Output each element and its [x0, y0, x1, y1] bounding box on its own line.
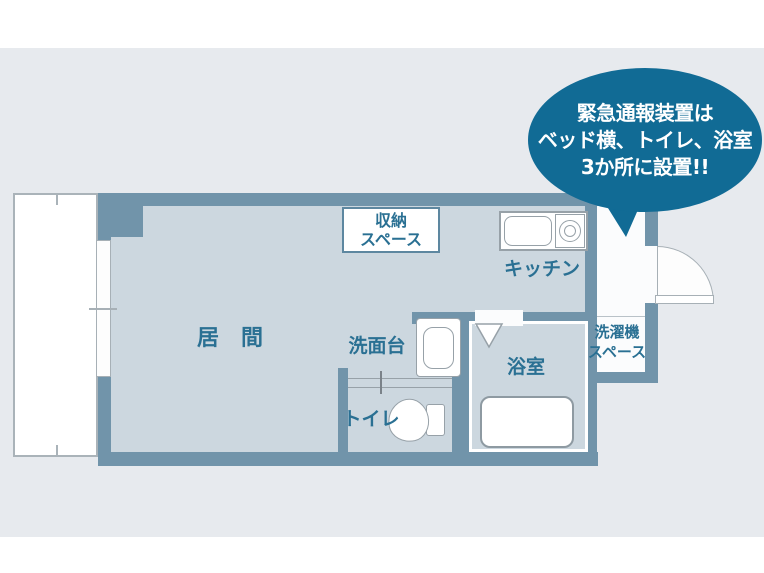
laundry-space-label: 洗濯機 スペース — [584, 322, 650, 362]
callout-bubble: 緊急通報装置は ベッド横、トイレ、浴室 3か所に設置!! — [528, 68, 762, 212]
corner-pillar — [98, 193, 143, 237]
washbasin-bowl-icon — [423, 327, 454, 369]
toilet-door-band — [348, 378, 452, 388]
kitchen-label: キッチン — [500, 259, 584, 281]
bubble-text-line1: 緊急通報装置は — [577, 100, 714, 127]
balcony-divider-tick — [56, 194, 58, 205]
window-center-tick — [89, 308, 117, 310]
bubble-text-line3: 3か所に設置!! — [581, 154, 709, 181]
bathroom-door-icon — [474, 323, 504, 350]
bathroom-label: 浴室 — [501, 357, 551, 379]
balcony — [13, 193, 98, 457]
balcony-divider-tick — [56, 445, 58, 456]
living-room-label: 居 間 — [190, 326, 270, 351]
storage-space-box: 収納 スペース — [342, 207, 440, 253]
stove-burner-inner-icon — [564, 225, 576, 237]
wall-bottom — [98, 452, 598, 466]
toilet-door-tick — [380, 371, 382, 394]
storage-label-line2: スペース — [360, 230, 422, 249]
storage-label-line1: 収納 — [375, 211, 407, 230]
laundry-label-line2: スペース — [584, 342, 650, 362]
toilet-label: トイレ — [342, 409, 400, 431]
bubble-text-line2: ベッド横、トイレ、浴室 — [538, 127, 753, 154]
entrance-door-leaf — [655, 295, 714, 304]
kitchen-sink-icon — [504, 216, 552, 246]
laundry-label-line1: 洗濯機 — [584, 322, 650, 342]
washstand-label: 洗面台 — [340, 336, 414, 358]
bathtub-icon — [480, 396, 574, 448]
